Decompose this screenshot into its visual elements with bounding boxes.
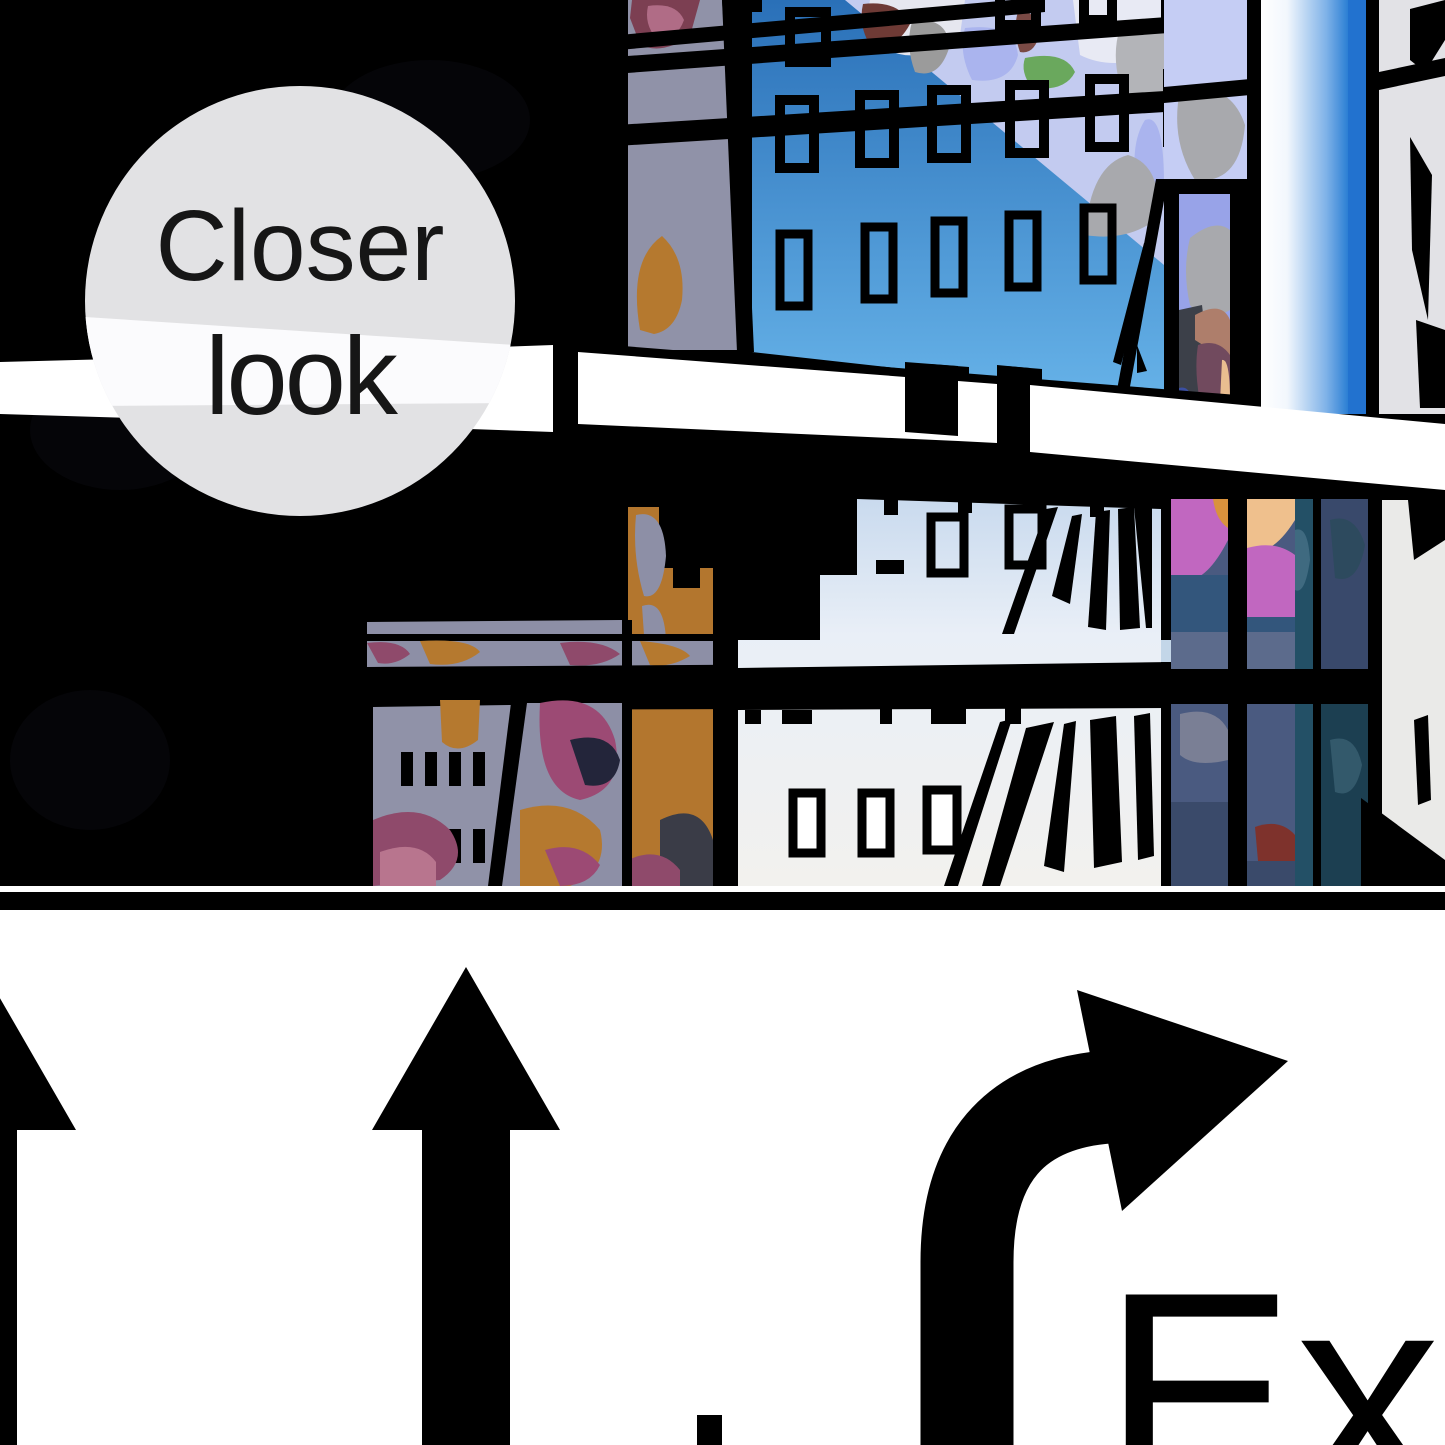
svg-text:look: look: [205, 315, 399, 438]
svg-text:Exit: Exit: [1102, 1232, 1445, 1445]
svg-text:Closer: Closer: [156, 190, 445, 302]
